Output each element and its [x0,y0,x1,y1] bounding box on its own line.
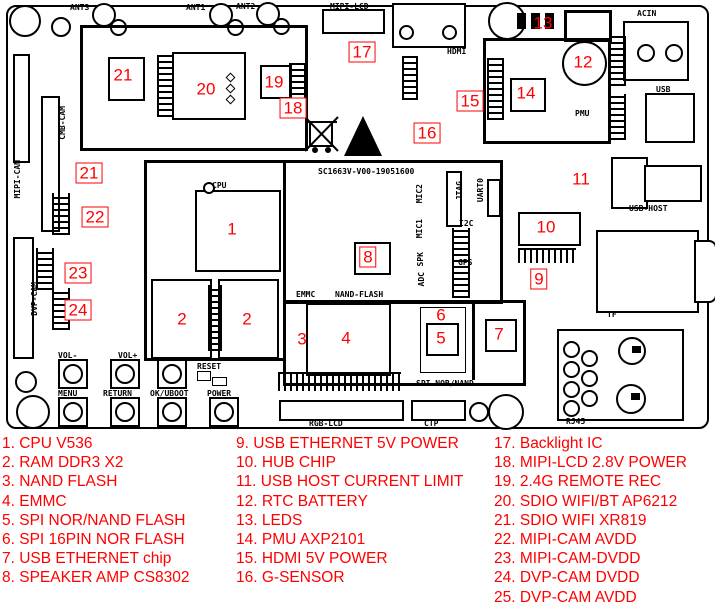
marker-21: 21 [114,67,133,84]
pad-ladder [487,58,504,120]
silk-label-hdmi: HDMI [447,47,466,56]
legend-item: 16. G-SENSOR [236,568,463,587]
silk-label-pmu: PMU [575,109,589,118]
legend-column-3: 17. Backlight IC18. MIPI-LCD 2.8V POWER1… [494,434,687,602]
legend-item: 25. DVP-CAM AVDD [494,588,687,602]
legend-item: 14. PMU AXP2101 [236,530,463,549]
silk-label-emmc: EMMC [296,290,315,299]
silk-label-i2c: I2C [459,219,473,228]
legend-column-1: 1. CPU V5362. RAM DDR3 X23. NAND FLASH4.… [2,434,190,588]
silk-label-menu: MENU [58,389,77,398]
marker-9: 9 [530,269,547,290]
marker-17: 17 [349,42,376,63]
marker-24: 24 [65,300,92,321]
rj45-led-hole [563,361,580,378]
silk-label-spk: SPK [416,252,426,266]
led [517,13,526,29]
silk-label-jtag: JTAG [455,181,465,200]
marker-18: 18 [280,98,307,119]
menu-button [58,397,88,427]
ctp-connector [411,400,466,421]
flash-module-divider [472,300,475,380]
pcb-component-diagram: ANT3ANT1ANT2MIPI-LCDHDMIACINUSBPMUUSB-HO… [0,0,715,602]
legend-item: 13. LEDS [236,511,463,530]
tf-card-slot [596,230,699,313]
silk-label-mic1: MIC1 [415,219,425,238]
marker-10: 10 [537,219,556,236]
rj45-transformer-core [631,393,640,400]
uart0-header [487,179,501,217]
mounting-hole [9,5,41,37]
rj45-led-hole [563,400,580,417]
legend-item: 18. MIPI-LCD 2.8V POWER [494,453,687,472]
legend-item: 24. DVP-CAM DVDD [494,568,687,587]
rj45-led-hole [581,350,598,367]
usb-connector [645,93,695,143]
pin-header-strip [278,372,401,391]
marker-12: 12 [574,54,593,71]
tf-card-tab [694,240,715,303]
legend-item: 15. HDMI 5V POWER [236,549,463,568]
silk-label-ant3: ANT3 [70,3,89,12]
mipi-lcd-connector [322,9,385,34]
marker-1: 1 [227,221,236,238]
hdmi-connector-hole [399,25,414,40]
silk-label-tf: TF [607,310,617,319]
marker-4: 4 [341,330,350,347]
silk-label-sc1663v-v00-19051600: SC1663V-V00-19051600 [318,167,414,176]
silk-label-ant2: ANT2 [236,2,255,11]
rj45-transformer-core [632,346,641,353]
legend-item: 17. Backlight IC [494,434,687,453]
vol-minus-button [58,359,88,389]
silk-label-ant1: ANT1 [186,3,205,12]
marker-15: 15 [457,91,484,112]
rgb-lcd-connector [279,400,404,421]
legend-item: 6. SPI 16PIN NOR FLASH [2,530,190,549]
silk-label-nand-flash: NAND-FLASH [335,290,383,299]
silk-label-reset: RESET [197,362,221,371]
marker-19: 19 [265,74,284,91]
silk-label-spi-nor-nand: SPI NOR/NAND [416,379,474,388]
legend-item: 4. EMMC [2,492,190,511]
legend-item: 9. USB ETHERNET 5V POWER [236,434,463,453]
marker-20: 20 [197,81,216,98]
legend-item: 20. SDIO WIFI/BT AP6212 [494,492,687,511]
marker-7: 7 [494,326,503,343]
silk-label-gps: GPS [458,258,472,267]
legend-item: 12. RTC BATTERY [236,492,463,511]
silk-label-return: RETURN [103,389,132,398]
marker-2: 2 [177,311,186,328]
marker-16: 16 [414,123,441,144]
silk-label-ctp: CTP [424,419,438,428]
mounting-hole [488,394,524,430]
legend-item: 7. USB ETHERNET chip [2,549,190,568]
usb-host-connector [611,157,648,209]
silk-label-cmb-cam: CMB-CAM [58,106,68,140]
mounting-hole [16,395,50,429]
marker-13: 13 [534,15,553,32]
marker-2: 2 [242,311,251,328]
mipi-cam-connector [13,54,30,163]
marker-22: 22 [82,207,109,228]
silk-label-vol-: VOL- [58,351,77,360]
rj45-led-hole [563,381,580,398]
silk-label-vol-: VOL+ [118,351,137,360]
rj45-led-hole [563,341,580,358]
marker-6: 6 [436,307,445,324]
marker-5: 5 [436,330,445,347]
marker-23: 23 [65,263,92,284]
marker-8: 8 [359,247,376,268]
rj45-led-hole [581,390,598,407]
silk-label-adc: ADC [417,272,427,286]
audio-codec-module-box [283,160,503,304]
silk-label-rgb-lcd: RGB-LCD [309,419,343,428]
rj45-led-hole [581,370,598,387]
legend-item: 5. SPI NOR/NAND FLASH [2,511,190,530]
legend-item: 21. SDIO WIFI XR819 [494,511,687,530]
pad-ladder [402,56,418,100]
mounting-hole [51,17,71,37]
cpu-chip [195,190,281,272]
silk-label-uart0: UART0 [476,178,486,202]
silk-label-acin: ACIN [637,9,656,18]
return-button [110,397,140,427]
weee-and-triangle-symbols [300,108,384,160]
mounting-hole [15,371,37,393]
legend-item: 23. MIPI-CAM-DVDD [494,549,687,568]
reset-button [157,359,187,389]
legend-item: 2. RAM DDR3 X2 [2,453,190,472]
hdmi-connector-hole [442,25,457,40]
legend-item: 11. USB HOST CURRENT LIMIT [236,472,463,491]
marker-21: 21 [76,163,103,184]
pad-ladder [609,36,626,86]
reset-pads [212,377,227,386]
silk-label-cpu: CPU [212,181,226,190]
legend-item: 10. HUB CHIP [236,453,463,472]
pad-ladder [157,55,174,117]
acin-jack-hole [637,44,655,62]
acin-jack-hole [665,44,683,62]
pad-ladder [52,193,70,235]
legend-item: 19. 2.4G REMOTE REC [494,472,687,491]
mounting-hole [469,402,489,422]
pad-ladder [609,94,626,140]
legend-item: 3. NAND FLASH [2,472,190,491]
silk-label-usb-host: USB-HOST [629,204,668,213]
silk-label-usb: USB [656,85,670,94]
silk-label-dvp-cam: DVP-CAM [30,282,40,316]
reset-pads [197,371,211,381]
pad-ladder [208,285,222,351]
silk-label-mipi-lcd: MIPI-LCD [330,2,369,11]
power-button [209,397,239,427]
marker-14: 14 [517,85,536,102]
pad-ladder [518,248,576,263]
legend-column-2: 9. USB ETHERNET 5V POWER10. HUB CHIP11. … [236,434,463,588]
legend-item: 1. CPU V536 [2,434,190,453]
silk-label-mic2: MIC2 [415,184,425,203]
connector-block [564,10,612,42]
ok-uboot-button [157,397,187,427]
silk-label-mipi-cam: MIPI-CAM [13,160,23,199]
pad-ladder [289,63,306,101]
silk-label-ok-uboot: OK/UBOOT [150,389,189,398]
legend-item: 22. MIPI-CAM AVDD [494,530,687,549]
usb-host-connector-body [644,165,702,202]
silk-label-power: POWER [207,389,231,398]
marker-3: 3 [297,331,306,348]
legend-item: 8. SPEAKER AMP CS8302 [2,568,190,587]
silk-label-rj45: RJ45 [566,417,585,426]
vol-plus-button [110,359,140,389]
marker-11: 11 [572,171,590,188]
